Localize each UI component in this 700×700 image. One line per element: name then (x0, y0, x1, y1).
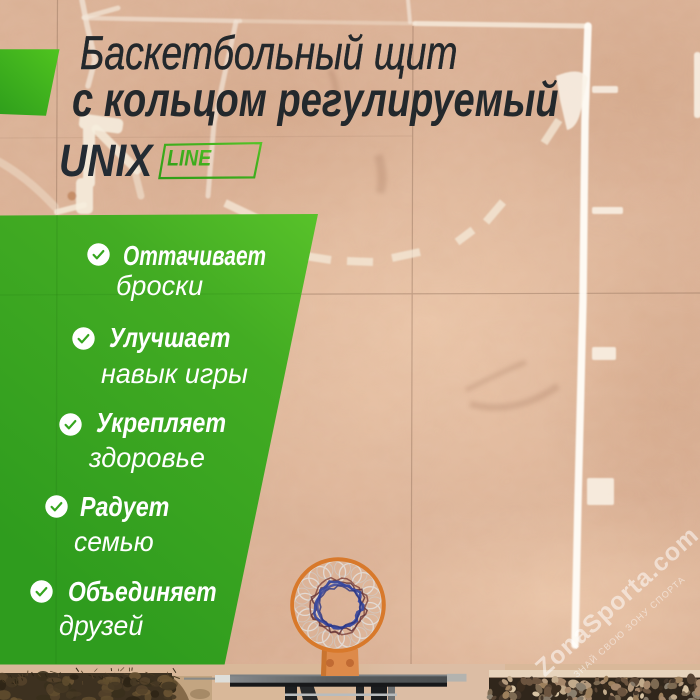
svg-text:LINE: LINE (167, 146, 212, 171)
